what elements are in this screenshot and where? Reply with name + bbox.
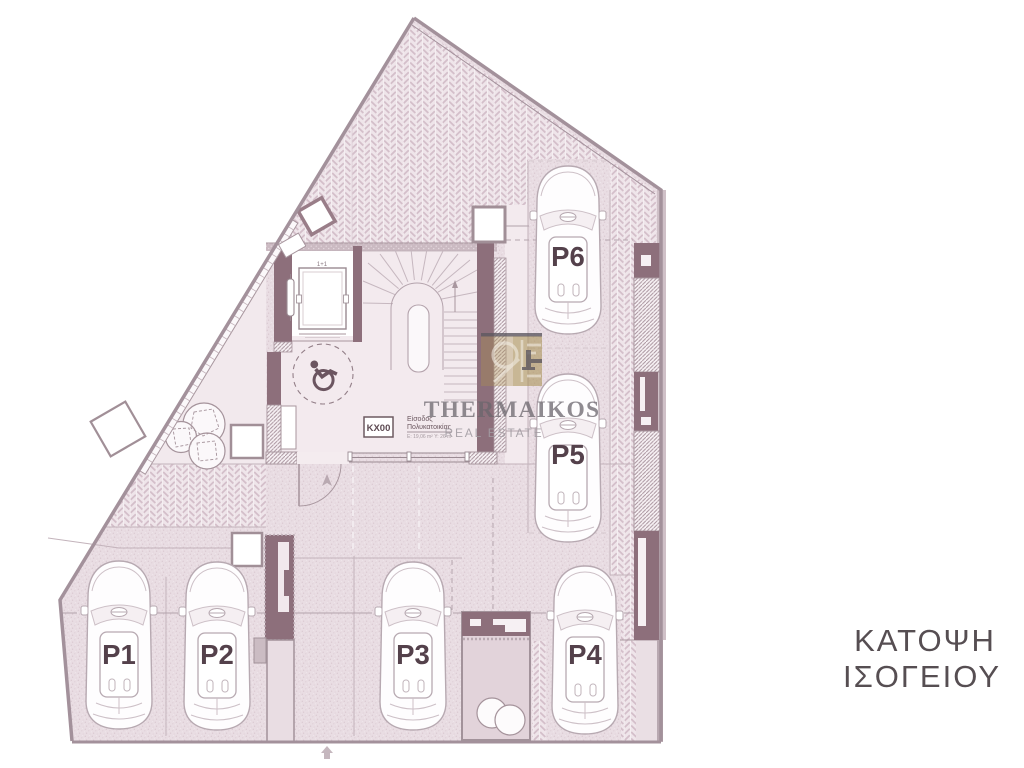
- svg-text:KX00: KX00: [367, 423, 391, 434]
- svg-text:ΚΑΤΟΨΗ: ΚΑΤΟΨΗ: [854, 623, 996, 658]
- svg-text:THERMAIKOS: THERMAIKOS: [424, 397, 601, 423]
- svg-text:P5: P5: [551, 439, 585, 470]
- svg-text:P4: P4: [568, 639, 602, 670]
- svg-text:1+1: 1+1: [317, 262, 328, 268]
- svg-text:P6: P6: [551, 241, 585, 272]
- svg-text:P2: P2: [200, 639, 234, 670]
- svg-text:REAL ESTATE: REAL ESTATE: [445, 426, 544, 440]
- svg-text:P1: P1: [102, 639, 136, 670]
- svg-text:ΙΣΟΓΕΙΟΥ: ΙΣΟΓΕΙΟΥ: [843, 659, 1001, 694]
- svg-text:P3: P3: [396, 639, 430, 670]
